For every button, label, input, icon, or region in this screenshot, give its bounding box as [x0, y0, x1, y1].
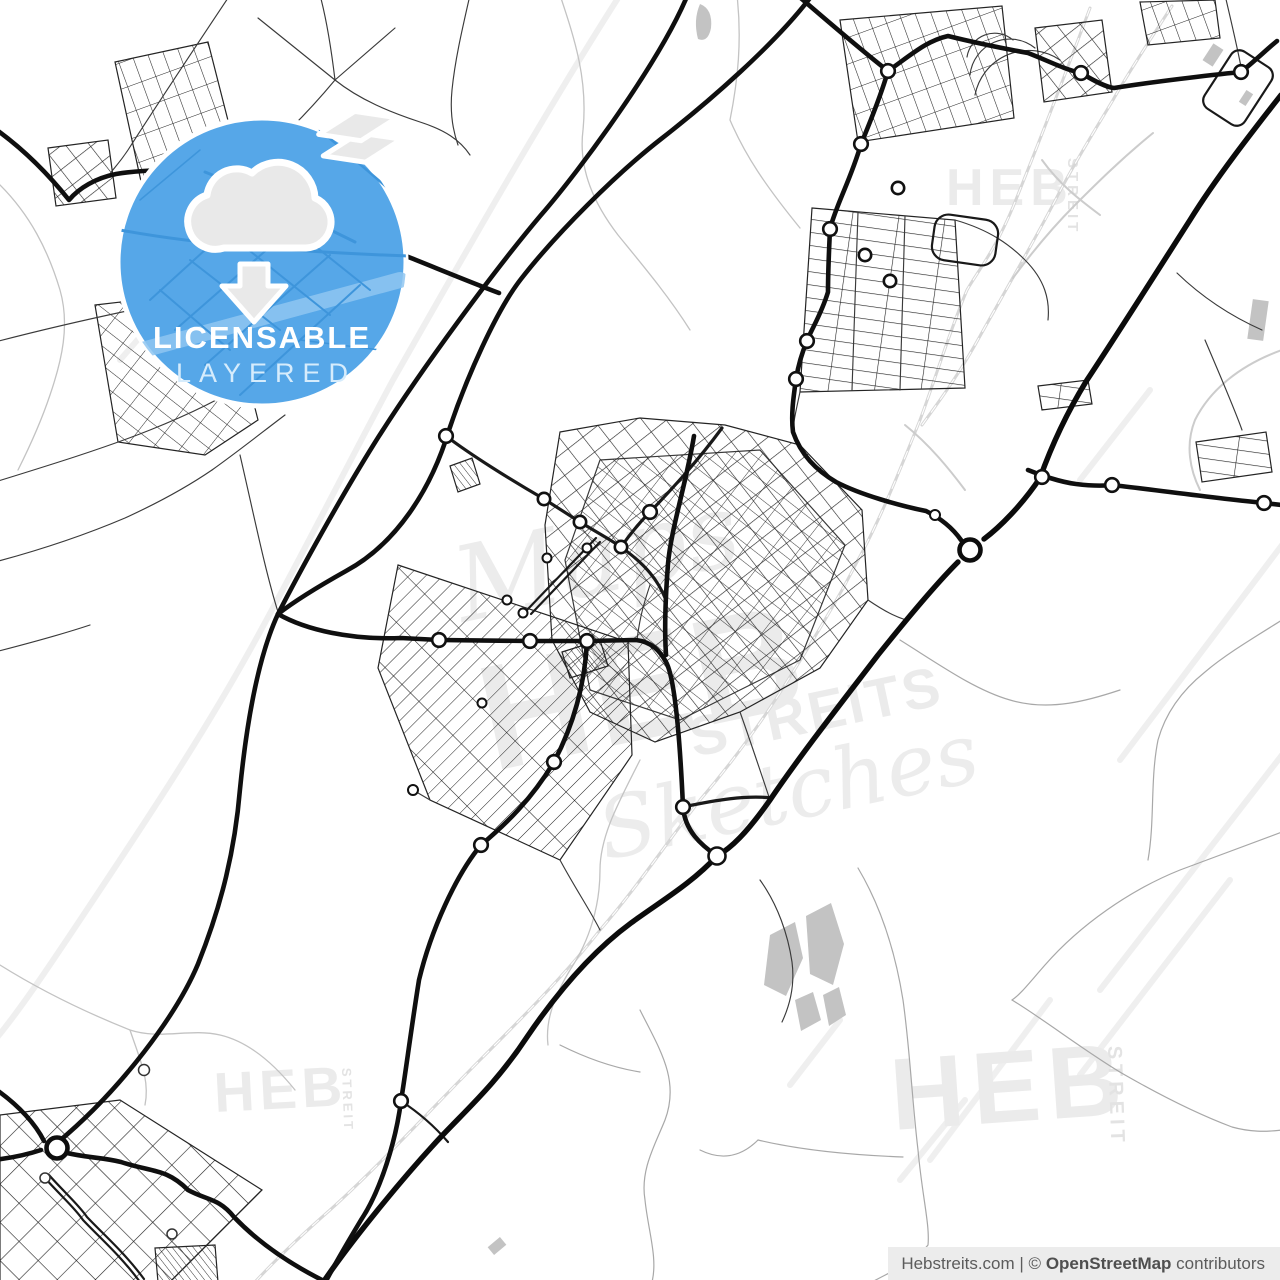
- map-preview-page: { "badge": { "line1": "LICENSABLE", "lin…: [0, 0, 1280, 1280]
- attribution-suffix: contributors: [1171, 1254, 1265, 1274]
- attribution-site-link[interactable]: Hebstreits.com: [901, 1254, 1014, 1274]
- badge-subtitle: LAYERED: [176, 358, 356, 388]
- watermark-side: STREIT: [1103, 1045, 1129, 1147]
- attribution-separator: | ©: [1015, 1254, 1046, 1274]
- watermark-bottom-right: HEB STREIT: [887, 1022, 1134, 1152]
- attribution-bar: Hebstreits.com | © OpenStreetMap contrib…: [888, 1247, 1280, 1280]
- attribution-osm-link[interactable]: OpenStreetMap: [1046, 1254, 1172, 1274]
- watermark-bottom-left: HEB STREIT: [212, 1054, 356, 1132]
- watermark-side: STREIT: [339, 1068, 356, 1133]
- watermark-main: HEB: [212, 1054, 348, 1124]
- map-canvas: Maps HEB STREITS Sketches HEB STREIT HEB…: [0, 0, 1280, 1280]
- badge-title: LICENSABLE: [153, 320, 371, 355]
- watermark-main: HEB: [946, 159, 1074, 217]
- watermark-main: HEB: [887, 1022, 1134, 1152]
